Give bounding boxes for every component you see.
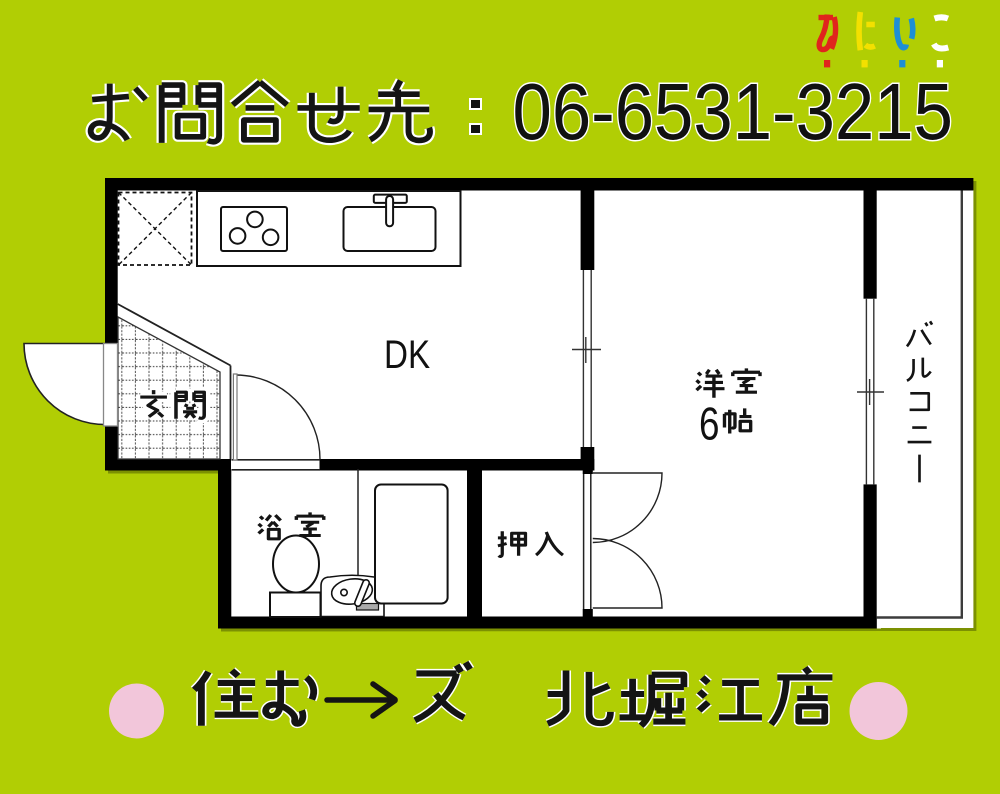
svg-text:6: 6: [699, 398, 719, 450]
svg-text:06-6531-3215: 06-6531-3215: [513, 67, 953, 156]
svg-text:DK: DK: [384, 332, 431, 377]
